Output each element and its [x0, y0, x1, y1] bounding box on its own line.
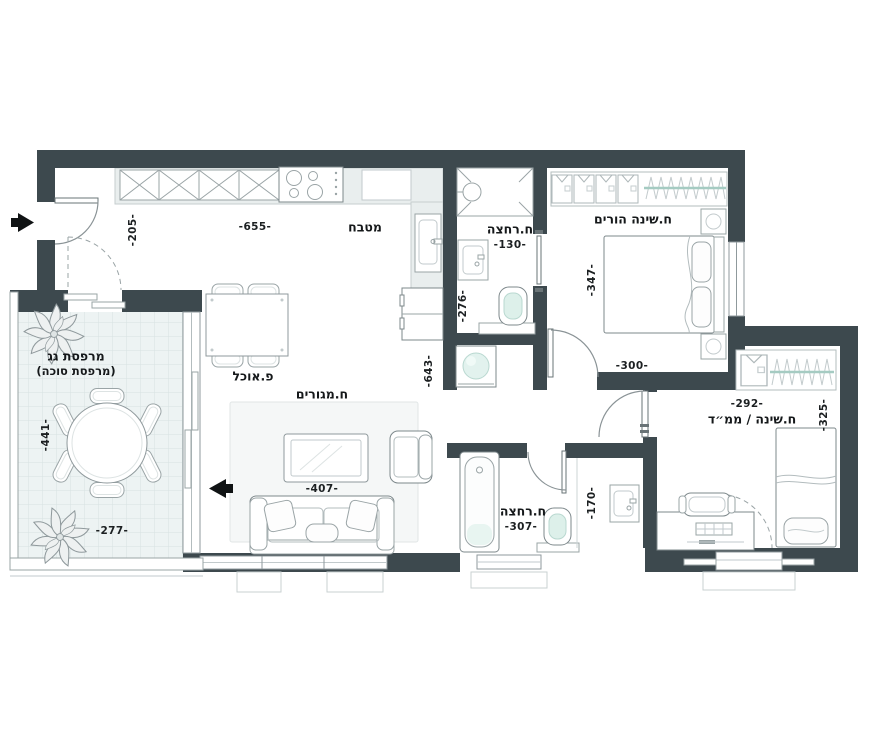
dining-label: פ.אוכל — [232, 369, 273, 384]
desk — [657, 512, 754, 550]
bath2-door — [528, 451, 566, 493]
living-room-width-dim: -407- — [306, 483, 339, 495]
armchair — [390, 431, 432, 483]
entrance-door — [55, 198, 98, 244]
master-window — [729, 242, 744, 316]
corridor-length-dim: -643- — [423, 355, 435, 388]
bath1-sliding-door — [535, 230, 543, 292]
shirt-icon — [552, 175, 572, 203]
bathtub-icon — [460, 452, 499, 552]
shower-icon — [457, 168, 533, 216]
entrance-arrow — [11, 213, 34, 232]
shirt-icon — [574, 175, 594, 203]
master-bed — [604, 236, 724, 333]
shirt-icon — [741, 355, 767, 386]
shirt-icon — [596, 175, 616, 203]
bedroom2-bed — [776, 428, 836, 547]
dining-table — [206, 294, 288, 356]
kitchen-entry-dim: -205- — [127, 214, 139, 247]
floor-plan: מטבח -205- -655- ח.רחצה -130- -276- ח.שי… — [0, 0, 877, 734]
living-window — [200, 556, 387, 592]
bath1-toilet-icon — [479, 287, 535, 334]
bathroom-bottom-length-dim: -170- — [586, 487, 598, 520]
bedroom2-label: ח.שינה / ממ״ד — [708, 412, 796, 427]
floor-plan-graphic — [0, 0, 877, 734]
bathroom-top-length-dim: -276- — [457, 290, 469, 323]
desk-chair — [679, 493, 735, 516]
fridge-icon — [400, 288, 443, 340]
kitchen-sink-icon — [415, 214, 442, 272]
kitchen-width-dim: -655- — [239, 221, 272, 233]
master-closet — [551, 172, 727, 206]
bath2-sink-icon — [610, 485, 639, 522]
bedroom2-length-dim: -325- — [818, 399, 830, 432]
bathroom-bottom-width-dim: -307- — [505, 521, 538, 533]
master-bedroom-length-dim: -347- — [586, 264, 598, 297]
master-bedroom-label: ח.שינה הורים — [594, 212, 672, 227]
bedroom2-door — [599, 391, 649, 437]
balcony-label: מרפסת גג — [47, 349, 104, 364]
balcony-sublabel: (מרפסת סוכה) — [36, 364, 115, 378]
bedroom2-closet — [736, 350, 836, 390]
balcony-table — [67, 403, 147, 483]
kitchen-cabinets — [120, 170, 411, 200]
balcony-sliding-door — [64, 294, 125, 308]
bathroom-top-label: ח.רחצה — [487, 222, 533, 237]
bathroom-top-width-dim: -130- — [494, 239, 527, 251]
balcony-door-dashed — [68, 237, 121, 290]
bathroom-bottom-label: ח.רחצה — [500, 504, 546, 519]
bath2-window — [471, 555, 547, 588]
sofa — [250, 496, 394, 554]
master-door — [548, 329, 598, 377]
balcony-arrow — [209, 479, 233, 498]
balcony-glass-wall — [183, 312, 200, 553]
stove-icon — [279, 167, 343, 202]
bedroom2-width-dim: -292- — [731, 398, 764, 410]
balcony-length-dim: -441- — [40, 419, 52, 452]
master-bedroom-width-dim: -300- — [616, 360, 649, 372]
living-room-label: ח.מגורים — [296, 387, 348, 402]
washing-machine-icon — [456, 346, 496, 387]
kitchen-label: מטבח — [348, 220, 382, 235]
balcony-width-dim: -277- — [96, 525, 129, 537]
shirt-icon — [618, 175, 638, 203]
coffee-table — [284, 434, 368, 482]
bath1-sink-icon — [458, 240, 488, 280]
